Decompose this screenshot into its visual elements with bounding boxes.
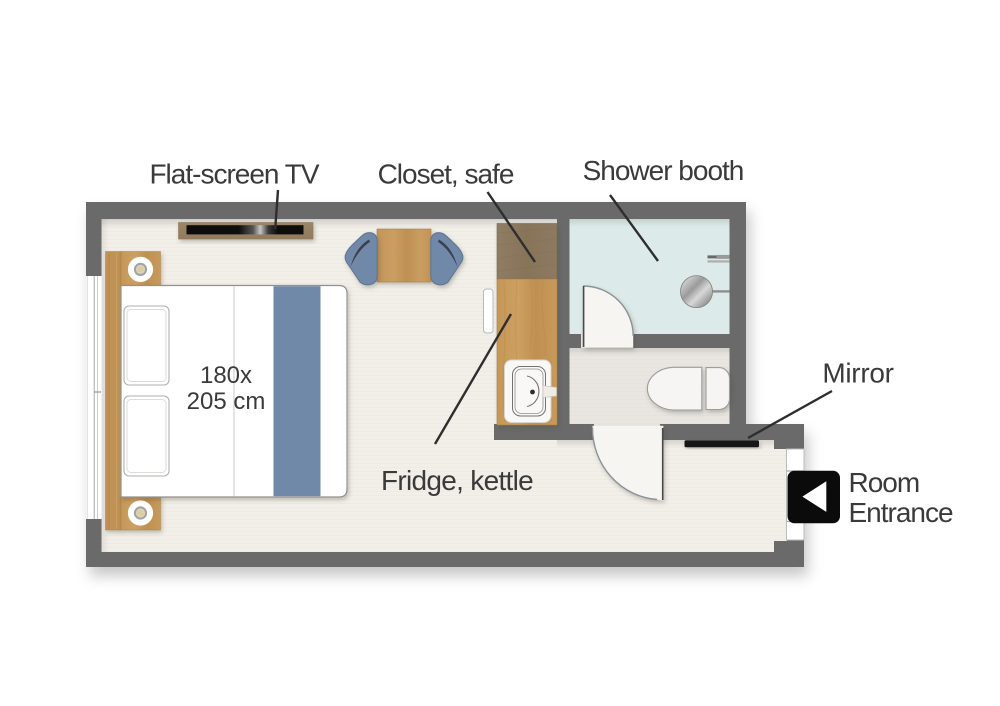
svg-text:Shower booth: Shower booth	[583, 155, 744, 186]
svg-text:180x: 180x	[200, 362, 252, 389]
svg-text:Room: Room	[849, 467, 920, 498]
svg-text:Mirror: Mirror	[822, 357, 893, 388]
svg-text:Closet, safe: Closet, safe	[378, 159, 514, 190]
svg-text:Entrance: Entrance	[849, 497, 953, 528]
svg-text:Flat-screen TV: Flat-screen TV	[149, 159, 319, 190]
svg-text:205 cm: 205 cm	[187, 388, 266, 415]
svg-text:Fridge, kettle: Fridge, kettle	[381, 465, 533, 496]
